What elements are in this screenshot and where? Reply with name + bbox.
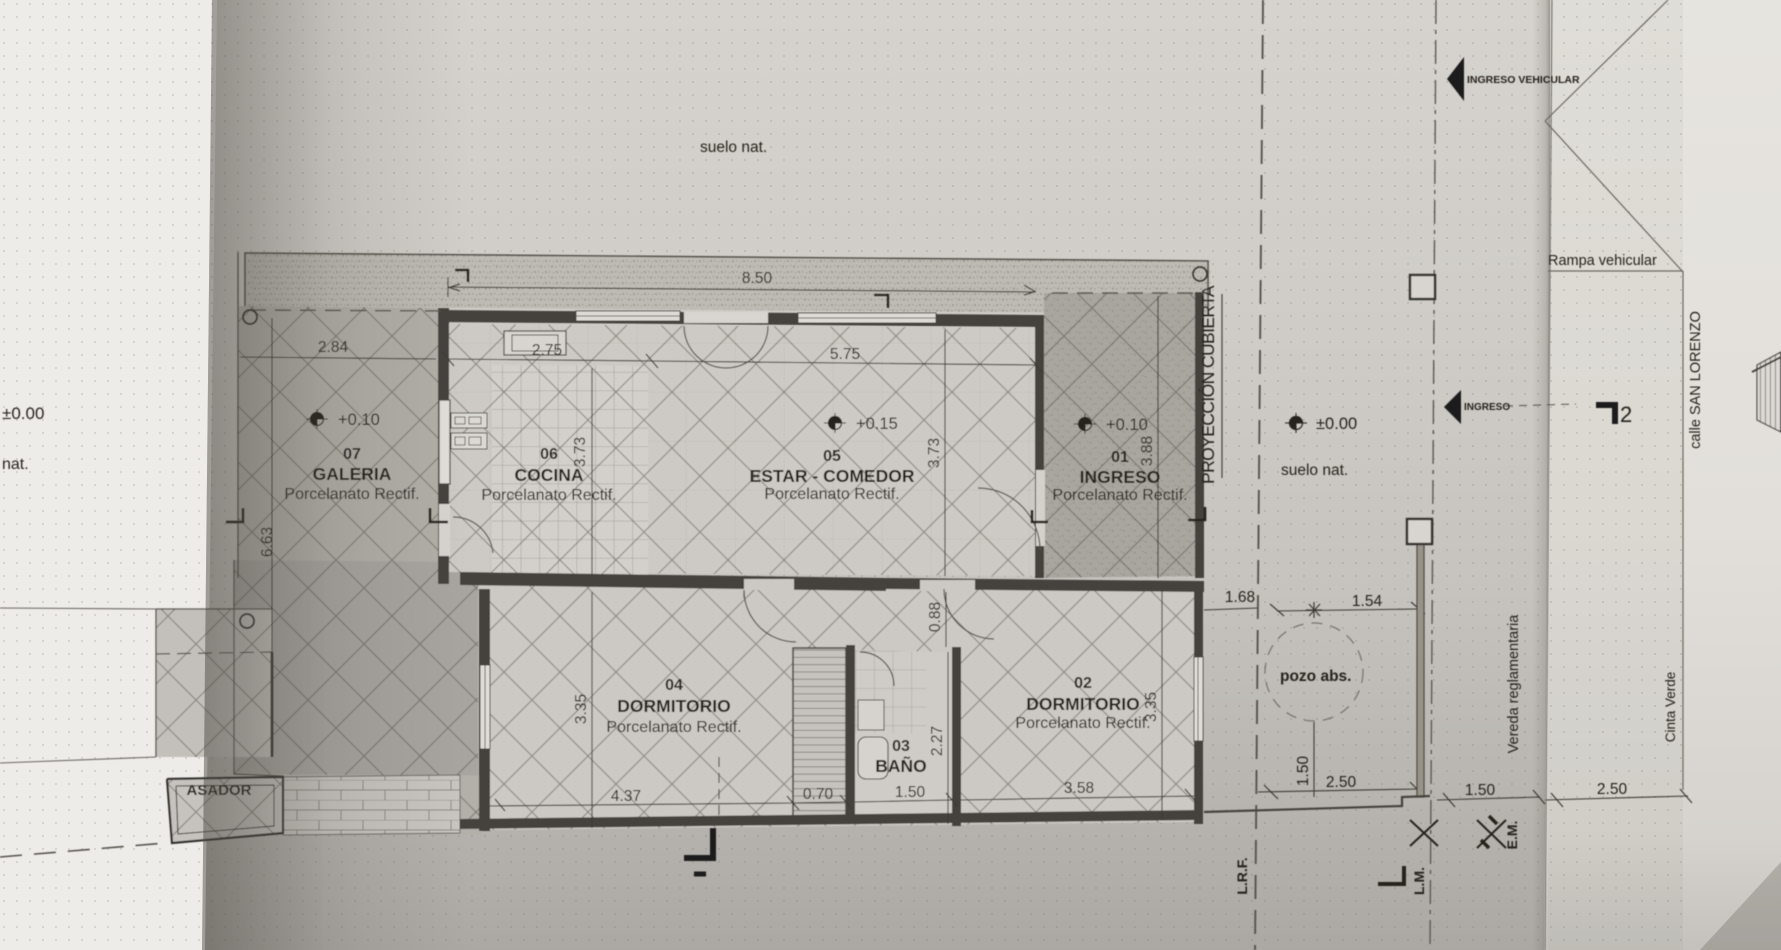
svg-text:8.50: 8.50 <box>742 270 773 287</box>
svg-text:pozo abs.: pozo abs. <box>1280 668 1351 685</box>
svg-text:04: 04 <box>665 677 683 694</box>
svg-text:ESTAR - COMEDOR: ESTAR - COMEDOR <box>750 466 915 486</box>
svg-text:1.50: 1.50 <box>895 784 926 801</box>
svg-text:3.58: 3.58 <box>1064 780 1094 797</box>
svg-text:01: 01 <box>1111 449 1129 466</box>
svg-text:INGRESO VEHICULAR: INGRESO VEHICULAR <box>1467 74 1580 86</box>
svg-text:L.R.F.: L.R.F. <box>1234 857 1250 894</box>
svg-text:COCINA: COCINA <box>514 465 583 485</box>
svg-text:L.M.: L.M. <box>1411 867 1427 895</box>
svg-text:05: 05 <box>823 448 841 465</box>
svg-text:2.75: 2.75 <box>532 342 562 359</box>
svg-text:2.50: 2.50 <box>1597 781 1628 798</box>
svg-text:1.50: 1.50 <box>1465 782 1496 799</box>
svg-text:3.88: 3.88 <box>1139 436 1156 466</box>
svg-text:±0.00: ±0.00 <box>1316 415 1357 433</box>
svg-text:suelo nat.: suelo nat. <box>700 139 767 156</box>
svg-text:1.68: 1.68 <box>1225 589 1255 606</box>
svg-text:±0.00: ±0.00 <box>2 404 44 423</box>
svg-text:Rampa vehicular: Rampa vehicular <box>1548 253 1657 269</box>
svg-text:0.88: 0.88 <box>927 602 944 632</box>
svg-text:06: 06 <box>540 446 558 463</box>
svg-text:Porcelanato Rectif.: Porcelanato Rectif. <box>764 486 899 503</box>
svg-text:DORMITORIO: DORMITORIO <box>1026 694 1139 714</box>
svg-text:03: 03 <box>892 738 910 755</box>
svg-text:4.37: 4.37 <box>611 788 641 805</box>
svg-text:calle SAN LORENZO: calle SAN LORENZO <box>1688 311 1704 449</box>
svg-text:suelo nat.: suelo nat. <box>1281 462 1348 479</box>
svg-text:2.50: 2.50 <box>1326 774 1357 791</box>
svg-text:INGRESO: INGRESO <box>1080 467 1161 487</box>
svg-text:1.50: 1.50 <box>1295 756 1312 787</box>
svg-text:0.70: 0.70 <box>803 786 834 803</box>
svg-text:PROYECCIÓN CUBIERTA: PROYECCIÓN CUBIERTA <box>1197 285 1218 484</box>
svg-text:1.54: 1.54 <box>1352 593 1383 610</box>
svg-text:nat.: nat. <box>2 456 29 473</box>
svg-text:DORMITORIO: DORMITORIO <box>617 696 730 716</box>
svg-text:Vereda reglamentaria: Vereda reglamentaria <box>1506 614 1522 754</box>
svg-text:Porcelanato Rectif.: Porcelanato Rectif. <box>606 719 741 736</box>
svg-text:BAÑO: BAÑO <box>875 755 927 776</box>
svg-text:Cinta Verde: Cinta Verde <box>1663 672 1678 743</box>
svg-text:02: 02 <box>1074 675 1092 692</box>
svg-text:3.73: 3.73 <box>926 438 943 468</box>
svg-text:2.27: 2.27 <box>929 726 946 756</box>
svg-text:2: 2 <box>1620 402 1632 427</box>
svg-text:3.35: 3.35 <box>573 694 590 724</box>
svg-text:E.M.: E.M. <box>1504 821 1520 850</box>
svg-text:5.75: 5.75 <box>830 346 860 363</box>
svg-text:Porcelanato Rectif.: Porcelanato Rectif. <box>481 487 616 504</box>
svg-text:+0.15: +0.15 <box>856 415 898 433</box>
svg-text:+0.10: +0.10 <box>1106 416 1148 434</box>
svg-text:Porcelanato Rectif.: Porcelanato Rectif. <box>1015 715 1150 732</box>
svg-text:Porcelanato Rectif.: Porcelanato Rectif. <box>1052 487 1187 504</box>
svg-text:INGRESO: INGRESO <box>1464 402 1510 413</box>
svg-text:3.73: 3.73 <box>572 437 589 467</box>
